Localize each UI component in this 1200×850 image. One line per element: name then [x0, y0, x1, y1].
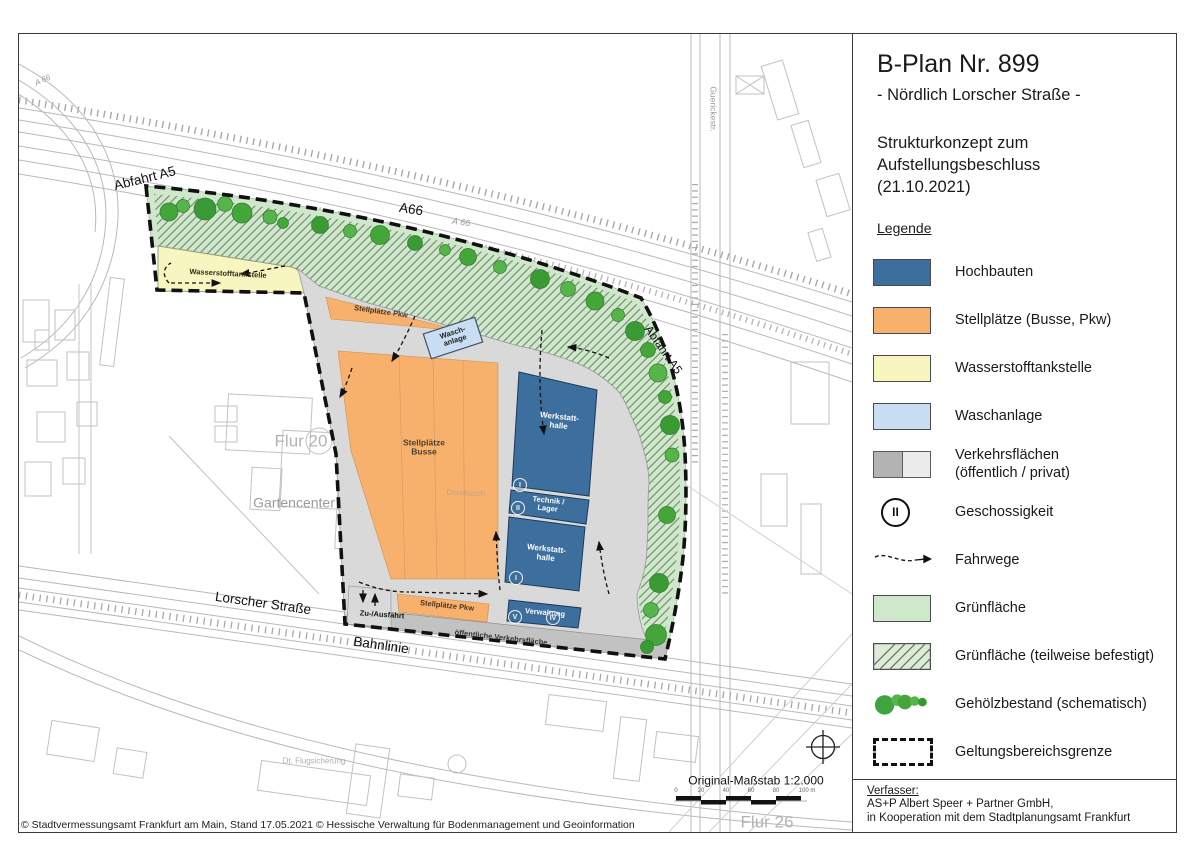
gruenflaeche-hatch-swatch-icon — [873, 643, 933, 670]
label-gartencenter: Gartencenter — [253, 495, 335, 510]
svg-text:40: 40 — [723, 788, 730, 794]
legend-panel: B-Plan Nr. 899 - Nördlich Lorscher Straß… — [852, 34, 1176, 832]
verfasser-heading: Verfasser: — [867, 785, 1176, 797]
legend-item-gehoelzbestand: Gehölzbestand (schematisch) — [853, 680, 1176, 728]
legend-item-verkehrsflaechen: Verkehrsflächen (öffentlich / privat) — [853, 440, 1176, 488]
plan-sheet: 0 20 40 60 80 100 m Abfahrt A5 A66 A — [0, 0, 1200, 850]
hochbauten-swatch-icon — [873, 259, 933, 286]
drawing-frame: 0 20 40 60 80 100 m Abfahrt A5 A66 A — [18, 33, 1177, 833]
svg-text:20: 20 — [698, 788, 705, 794]
legend-item-stellplaetze: Stellplätze (Busse, Pkw) — [853, 296, 1176, 344]
plan-concept: Strukturkonzept zum Aufstellungsbeschlus… — [877, 133, 1040, 198]
label-stellplaetze-busse: Stellplätze Busse — [403, 439, 445, 458]
legend-heading: Legende — [877, 220, 932, 236]
label-technik-lager: Technik / Lager — [531, 495, 565, 515]
legend-item-waschanlage: Waschanlage — [853, 392, 1176, 440]
stellplaetze-swatch-icon — [873, 307, 933, 334]
scale-bar: 0 20 40 60 80 100 m — [674, 788, 815, 805]
map-area: 0 20 40 60 80 100 m Abfahrt A5 A66 A — [19, 34, 852, 832]
copyright-note: © Stadtvermessungsamt Frankfurt am Main,… — [21, 819, 635, 831]
survey-point-icon — [806, 730, 840, 764]
svg-text:0: 0 — [674, 788, 678, 794]
legend-list: Hochbauten Stellplätze (Busse, Pkw) Wass… — [853, 248, 1176, 776]
verkehr-swatch-icon — [873, 451, 933, 478]
verfasser-line1: AS+P Albert Speer + Partner GmbH, — [867, 797, 1176, 811]
geschossigkeit-icon: II — [881, 498, 910, 527]
legend-item-hochbauten: Hochbauten — [853, 248, 1176, 296]
geschoss-mark-5: IV — [546, 611, 560, 625]
map-canvas: 0 20 40 60 80 100 m — [19, 34, 852, 832]
fahrwege-icon — [873, 548, 933, 572]
svg-text:80: 80 — [773, 788, 780, 794]
plan-subtitle: - Nördlich Lorscher Straße - — [877, 86, 1081, 105]
verfasser-block: Verfasser: AS+P Albert Speer + Partner G… — [853, 779, 1176, 832]
label-flur-20: Flur 20 — [275, 433, 328, 452]
legend-item-gruenflaeche-befestigt: Grünfläche (teilweise befestigt) — [853, 632, 1176, 680]
verfasser-line2: in Kooperation mit dem Stadtplanungsamt … — [867, 811, 1176, 825]
svg-text:100 m: 100 m — [799, 788, 816, 794]
legend-item-geschossigkeit: II Geschossigkeit — [853, 488, 1176, 536]
waschanlage-swatch-icon — [873, 403, 933, 430]
gruenflaeche-swatch-icon — [873, 595, 933, 622]
label-massstab: Original-Maßstab 1:2.000 — [688, 774, 823, 787]
geschoss-mark-1: I — [513, 478, 527, 492]
legend-item-fahrwege: Fahrwege — [853, 536, 1176, 584]
label-dornbusch: Dornbusch — [447, 489, 486, 499]
wasserstoff-swatch-icon — [873, 355, 933, 382]
plan-title: B-Plan Nr. 899 — [877, 50, 1040, 79]
legend-item-wasserstofftankstelle: Wasserstofftankstelle — [853, 344, 1176, 392]
label-flur-26: Flur 26 — [741, 814, 794, 832]
geschoss-mark-2: II — [511, 501, 525, 515]
geschoss-mark-4: V — [508, 610, 522, 624]
geschoss-mark-3: I — [509, 571, 523, 585]
svg-text:60: 60 — [748, 788, 755, 794]
legend-item-geltungsbereichsgrenze: Geltungsbereichsgrenze — [853, 728, 1176, 776]
label-guerickestr: Guerickestr. — [708, 86, 717, 131]
legend-item-gruenflaeche: Grünfläche — [853, 584, 1176, 632]
label-dt-flugsicherung: Dt. Flugsicherung — [283, 758, 346, 767]
gehoelzbestand-icon — [873, 689, 933, 719]
geltungsbereichsgrenze-icon — [873, 738, 933, 766]
zufahrt-area — [347, 586, 391, 628]
